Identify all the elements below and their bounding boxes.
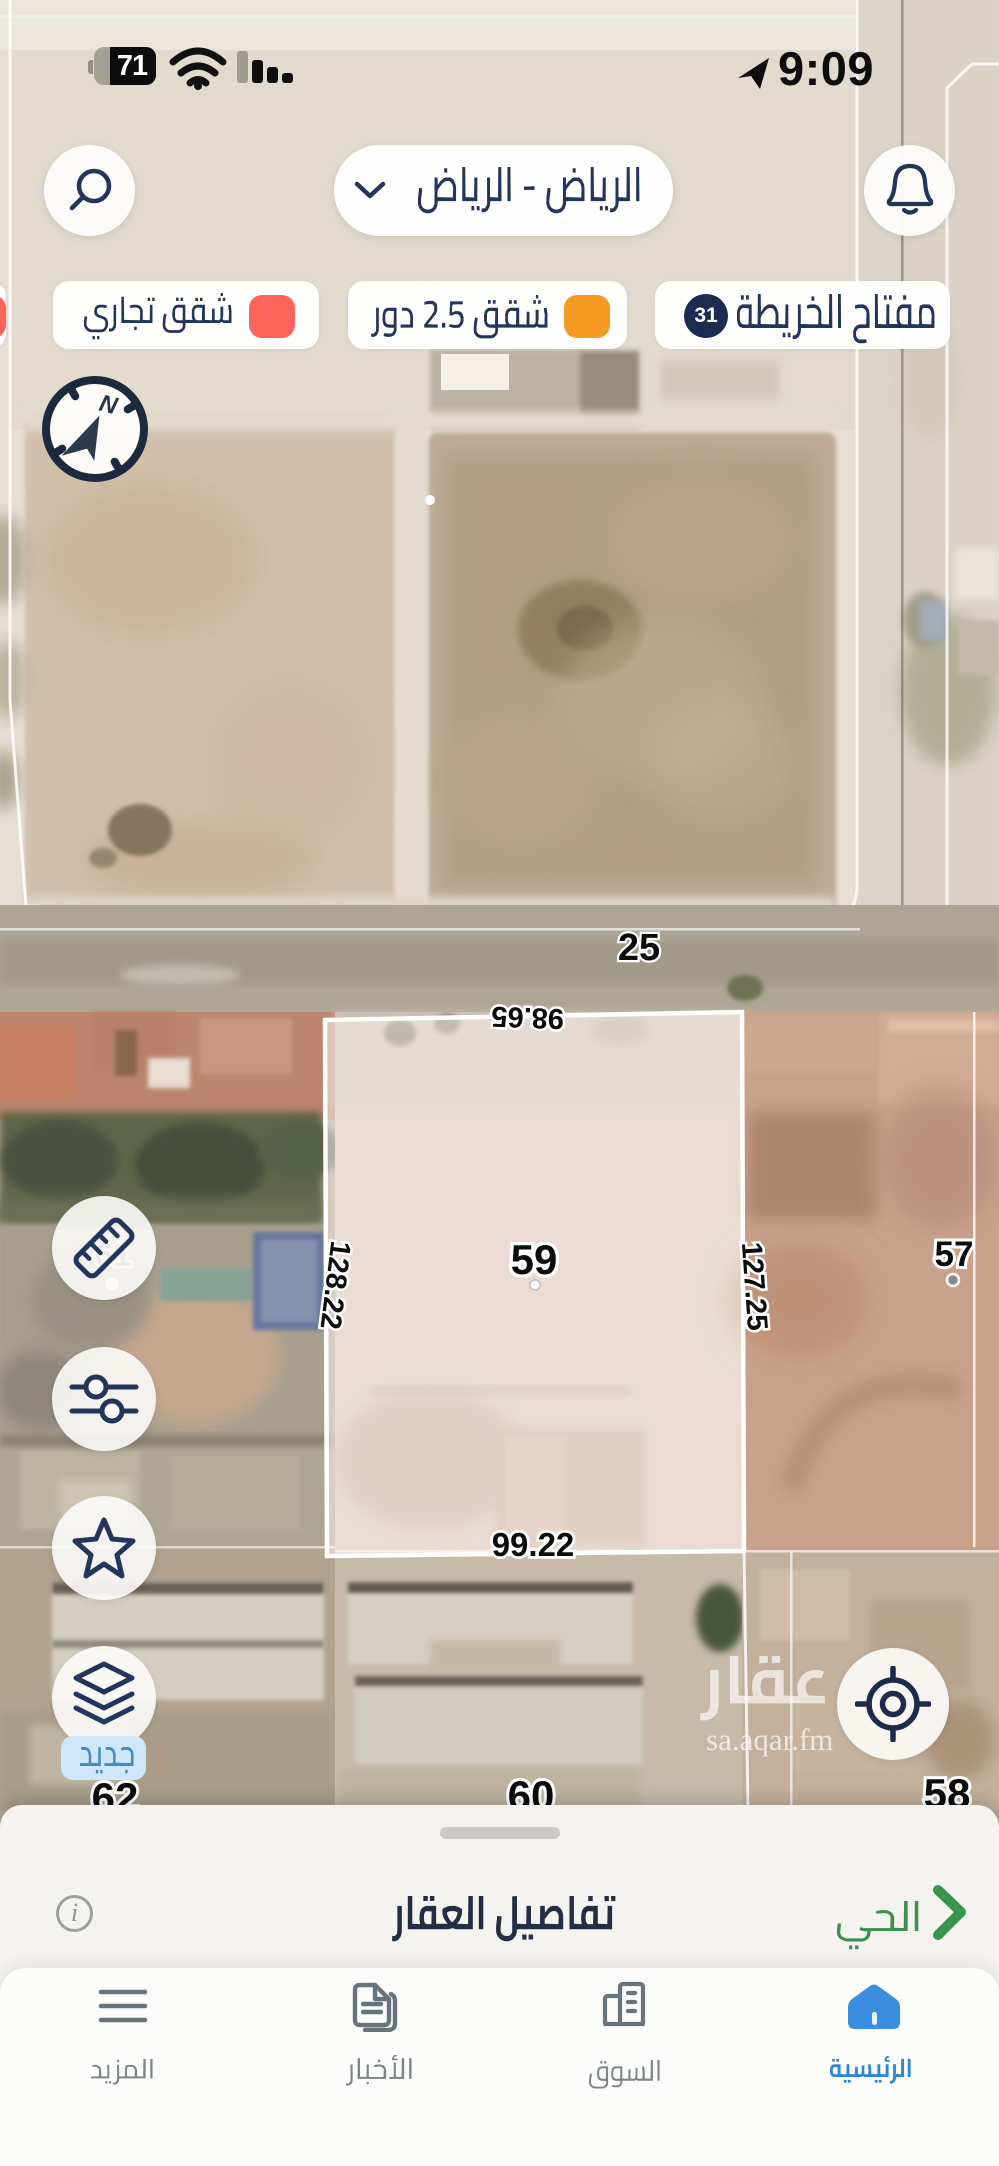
svg-text:99.22: 99.22: [492, 1526, 575, 1563]
svg-text:59: 59: [511, 1236, 558, 1283]
svg-text:127.25: 127.25: [735, 1241, 773, 1332]
svg-text:98.65: 98.65: [491, 1000, 565, 1035]
svg-text:25: 25: [618, 927, 660, 969]
svg-text:57: 57: [935, 1235, 974, 1274]
